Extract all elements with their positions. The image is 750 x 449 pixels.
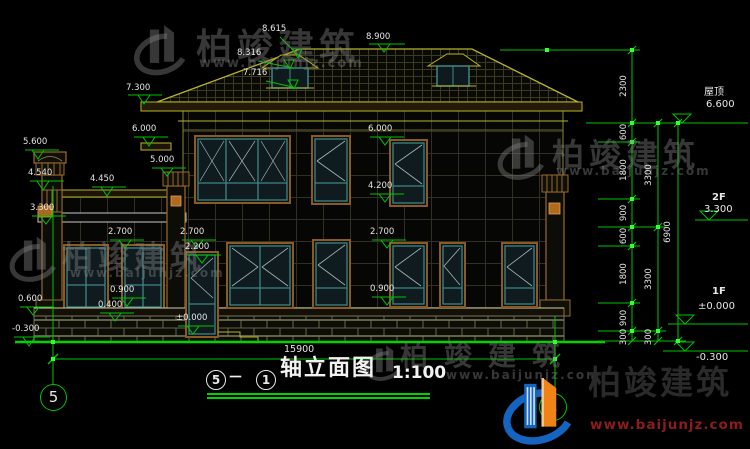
floor-label-1f: 1F: [712, 287, 726, 297]
floor-value-roof: 6.600: [706, 100, 735, 110]
title-axis-start-circle: 5: [206, 370, 226, 390]
f2-window-2: [312, 136, 350, 204]
dim-right-3300a: 3300: [643, 155, 655, 195]
elevation-marker-6000-left: 6.000: [132, 124, 156, 134]
f1-window-4: [440, 243, 465, 307]
dim-right-300a: 300: [618, 317, 630, 357]
elevation-marker-0900-center: 0.900: [370, 284, 394, 294]
pillar-ornament: [171, 196, 181, 206]
elevation-marker-4540: 4.540: [28, 168, 52, 178]
elevation-marker-4200: 4.200: [368, 181, 392, 191]
left-canopy: [141, 143, 171, 150]
elevation-marker-pm0000: ±0.000: [176, 313, 207, 323]
elevation-marker-5600: 5.600: [23, 137, 47, 147]
dim-right-600a: 600: [618, 112, 630, 152]
f2-window-3: [390, 140, 427, 206]
porch-parapet-band: [58, 190, 170, 197]
watermark-logo-icon: [494, 126, 550, 188]
pillar-ornament: [549, 203, 560, 214]
elevation-marker-7716: 7.716: [243, 68, 267, 78]
dim-right-300b: 300: [643, 317, 655, 357]
title-separator: －: [228, 372, 243, 382]
eave-band: [141, 102, 582, 111]
f1-window-1: [227, 243, 293, 308]
watermark-logo-icon: [130, 16, 192, 84]
floor-value-2f: 3.300: [704, 205, 733, 215]
elevation-marker-2700-center: 2.700: [370, 227, 394, 237]
elevation-marker-0600: 0.600: [18, 294, 42, 304]
title-underline-1: [207, 393, 430, 395]
axis-bubble-5: 5: [40, 384, 67, 411]
elevation-marker-0400: 0.400: [98, 300, 122, 310]
elevation-marker-8900: 8.900: [366, 32, 390, 42]
elevation-marker-6000-center: 6.000: [368, 124, 392, 134]
watermark-url: www.baijunjz.com: [556, 164, 711, 178]
elevation-marker-2700-porch: 2.700: [108, 227, 132, 237]
brand-url: www.baijunjz.com: [590, 420, 744, 430]
floor-label-roof: 屋顶: [704, 88, 724, 98]
f2-window-1: [195, 136, 290, 203]
elevation-marker-2700-door: 2.700: [180, 227, 204, 237]
elevation-marker-0900-porch: 0.900: [110, 285, 134, 295]
dim-right-1800b: 1800: [618, 254, 630, 294]
elevation-marker-neg0300-left: -0.300: [12, 324, 39, 334]
watermark-url: www.baijunjz.com: [199, 56, 364, 71]
floor-value-1f: ±0.000: [698, 302, 735, 312]
title-axis-end-circle: 1: [256, 370, 276, 390]
floor-label-2f: 2F: [712, 193, 726, 203]
dim-right-600b: 600: [618, 216, 630, 256]
elevation-marker-8615: 8.615: [262, 24, 286, 34]
elevation-marker-7300: 7.300: [126, 83, 150, 93]
f1-window-2: [313, 240, 350, 308]
elevation-marker-8316: 8.316: [237, 48, 261, 58]
elevation-marker-4450: 4.450: [90, 174, 114, 184]
elevation-marker-3300-left: 3.300: [30, 203, 54, 213]
cad-elevation-canvas: 柏竣建筑 www.baijunjz.com 柏竣建筑 www.baijunjz.…: [0, 0, 750, 449]
elevation-marker-5000: 5.000: [150, 155, 174, 165]
dim-right-6900: 6900: [662, 212, 674, 252]
drawing-title-text: 轴立面图: [280, 364, 376, 374]
floor-value-ground: -0.300: [696, 353, 728, 363]
title-underline-2: [207, 397, 430, 399]
dimension-total-width: 15900: [284, 345, 314, 355]
dim-right-3300b: 3300: [643, 259, 655, 299]
brand-name: 柏竣建筑: [588, 378, 732, 388]
drawing-scale: 1:100: [392, 368, 446, 378]
watermark-logo-icon: [6, 228, 62, 290]
f1-window-5: [502, 243, 537, 307]
watermark-url: www.baijunjz.com: [70, 266, 225, 280]
brand-logo-icon: [494, 374, 584, 448]
dim-right-2300: 2300: [618, 66, 630, 106]
dim-right-1800a: 1800: [618, 150, 630, 190]
elevation-marker-2200: 2.200: [185, 242, 209, 252]
